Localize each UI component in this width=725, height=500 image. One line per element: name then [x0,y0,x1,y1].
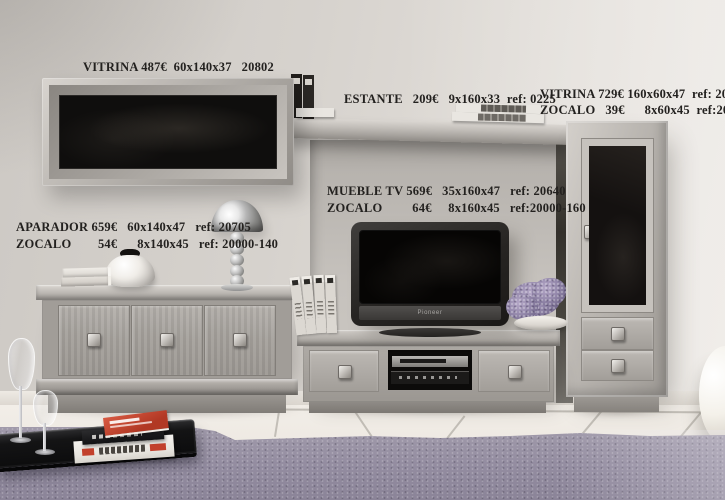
drawer [309,350,379,392]
sideboard-body [42,300,292,379]
book-spine-label [478,113,526,121]
standing-book [325,275,337,333]
label-sideboard-line1: APARADOR 659€ 60x140x47 ref: 20705 [16,219,251,235]
tv-screen [359,230,501,304]
label-shelf: ESTANTE 209€ 9x160x33 ref: 0225 [344,91,556,107]
tall-display-cabinet [566,121,668,397]
label-tv-unit-line2: ZOCALO 64€ 8x160x45 ref:20000-160 [327,200,586,216]
book-spine-mark [150,443,166,451]
tv-cabinet [297,330,560,413]
vase-body [105,255,155,287]
label-sideboard-line2: ZOCALO 54€ 8x140x45 ref: 20000-140 [16,236,278,252]
sideboard-plinth [48,395,286,413]
door-knob [160,333,174,347]
lying-book [296,108,334,117]
glass-bowl [33,390,58,426]
drawer [581,350,654,381]
rug-highlight [560,430,725,500]
decor-vase [105,249,155,287]
glass-stem [19,386,22,438]
sideboard-door [58,305,130,376]
drawer-knob [611,327,625,341]
sideboard [36,285,298,413]
glass-foot [10,437,31,443]
media-bay [388,350,472,390]
glass-door [581,138,654,313]
tv-cabinet-body [303,346,554,402]
lamp-base [221,284,253,291]
book-stack [61,267,108,287]
drawer-knob [508,365,522,379]
label-tv-unit-line1: MUEBLE TV 569€ 35x160x47 ref: 20640 [327,183,566,199]
glass-bowl [8,338,35,390]
book-spine-mark [82,448,94,456]
av-receiver [391,371,469,384]
wine-glass [31,390,59,458]
label-tall-cabinet-line1: VITRINA 729€ 160x60x47 ref: 20231 [540,86,725,102]
lavender-bouquet [506,278,572,334]
dvd-player [392,356,468,367]
sideboard-molding [36,379,298,395]
cabinet-glass-door [59,95,277,169]
glass-stem [43,423,46,451]
drawer-knob [611,359,625,373]
tall-cabinet-plinth [574,397,659,412]
door-knob [233,333,247,347]
glass-foot [35,449,55,455]
label-tall-cabinet-line2: ZOCALO 39€ 8x60x45 ref:20000-60 [540,102,725,118]
tv-stand [379,328,481,337]
drawer [581,317,654,350]
drawer-knob [338,365,352,379]
book-spine-text [99,445,145,455]
tv-cabinet-plinth [309,402,546,413]
tv: Pioneer [351,222,509,326]
sideboard-door [204,305,276,376]
door-knob [87,333,101,347]
flower-bowl [514,316,568,330]
furniture-catalog-photo: Pioneer [0,0,725,500]
sideboard-door [131,305,203,376]
stacked-book [61,276,111,286]
label-wall-cabinet: VITRINA 487€ 60x140x37 20802 [83,59,274,75]
door-glass-panel [589,146,646,305]
wall-display-cabinet [42,78,294,186]
drawer [478,350,550,392]
tv-brand-label: Pioneer [418,310,443,316]
tv-speaker-bar: Pioneer [359,306,501,320]
